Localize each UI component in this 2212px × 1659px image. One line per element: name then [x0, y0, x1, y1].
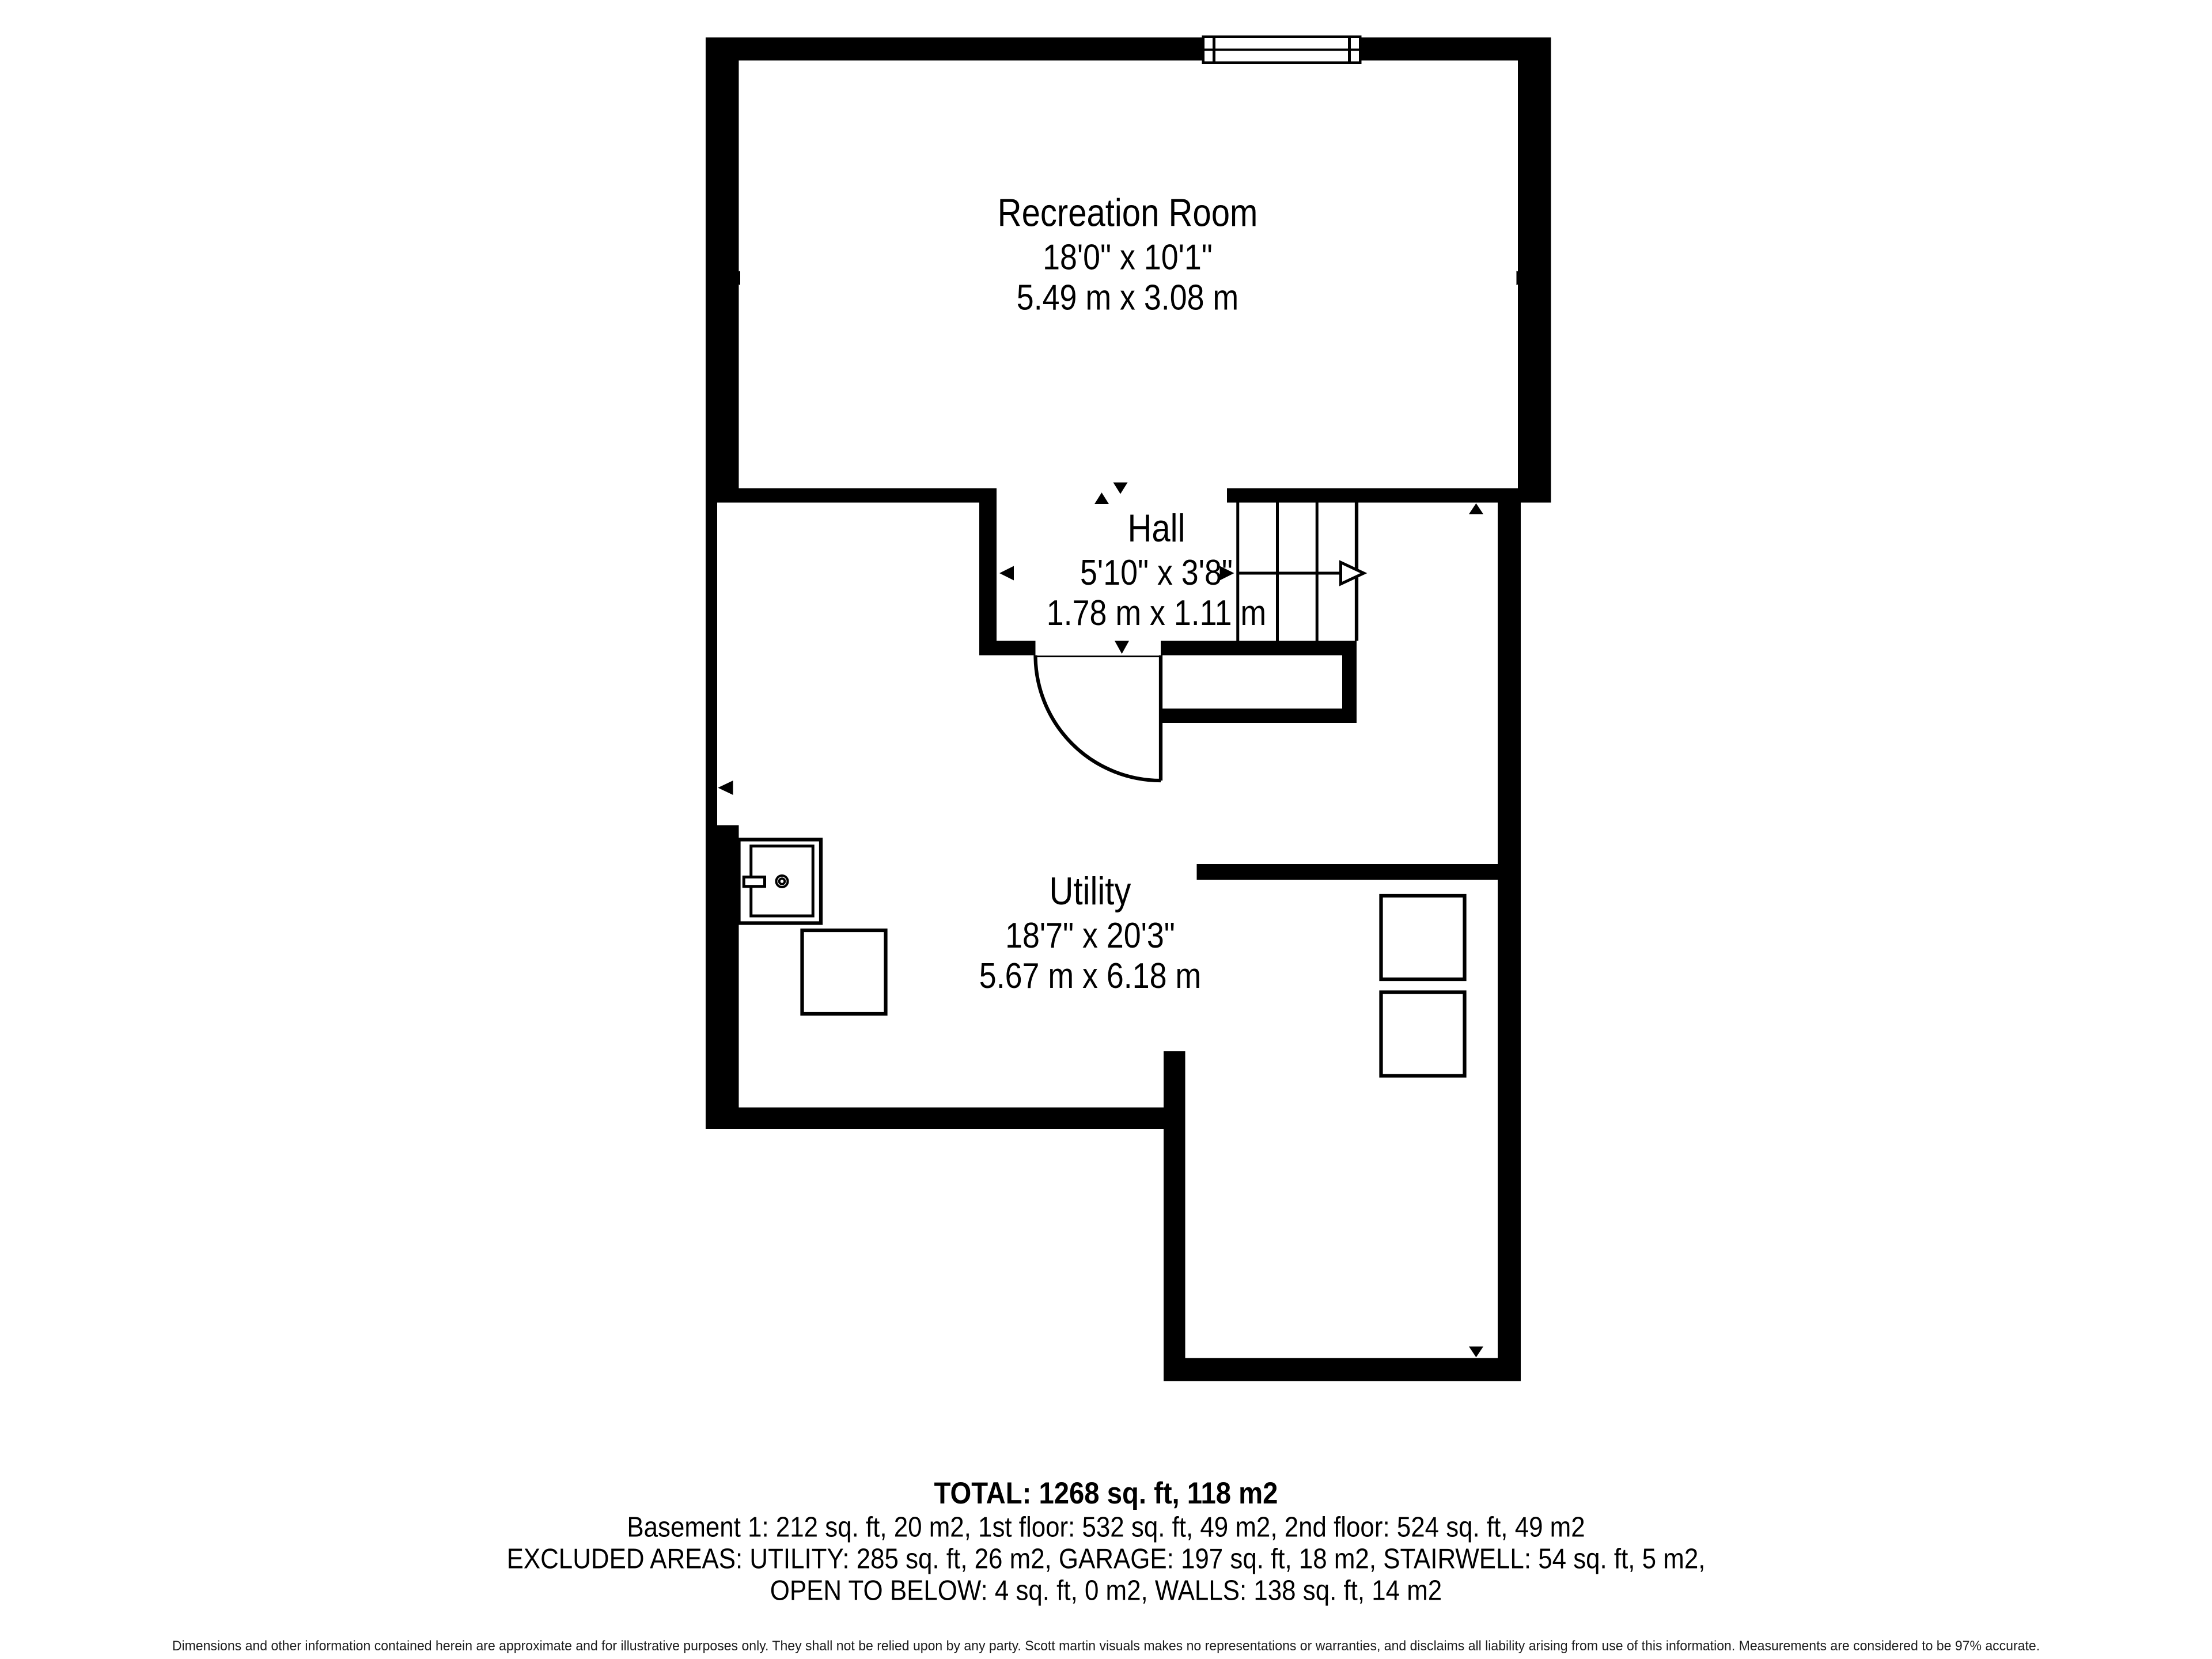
marker-right-section-top-icon — [1469, 503, 1483, 514]
summary-floors: Basement 1: 212 sq. ft, 20 m2, 1st floor… — [111, 1512, 2101, 1544]
room-dimensions-imperial: 18'0" x 10'1" — [880, 238, 1376, 278]
wall-above-stairs — [1227, 488, 1551, 503]
wall-understairs-bottom — [1161, 709, 1357, 723]
area-summary: TOTAL: 1268 sq. ft, 118 m2 Basement 1: 2… — [111, 1478, 2101, 1607]
stair-direction-arrowhead — [1341, 562, 1364, 584]
door-swing-arc — [1036, 656, 1161, 781]
marker-hall-top-up-icon — [1094, 493, 1109, 504]
wall-recreation-bottom-left — [706, 488, 997, 503]
page: Recreation Room 18'0" x 10'1" 5.49 m x 3… — [0, 0, 2212, 1659]
room-dimensions-metric: 1.78 m x 1.11 m — [971, 593, 1342, 634]
floor-plan: Recreation Room 18'0" x 10'1" 5.49 m x 3… — [0, 0, 2212, 1659]
wall-left-upper — [706, 37, 739, 503]
appliance-box-right-2 — [1381, 993, 1465, 1076]
room-name: Hall — [971, 506, 1342, 554]
room-name: Utility — [904, 869, 1276, 916]
marker-utility-left-icon — [718, 781, 733, 795]
appliance-box-utility — [802, 930, 886, 1014]
marker-hall-bottom-icon — [1115, 641, 1129, 654]
disclaimer-text: Dimensions and other information contain… — [33, 1639, 2179, 1655]
sink-faucet — [744, 877, 764, 887]
wall-garage-bottom — [1164, 1358, 1521, 1381]
wall-utility-bottom — [706, 1108, 1185, 1130]
marker-right-section-bottom-icon — [1469, 1347, 1483, 1358]
summary-total: TOTAL: 1268 sq. ft, 118 m2 — [111, 1478, 2101, 1512]
appliance-box-right-1 — [1381, 896, 1465, 979]
wall-stairs-bottom — [1161, 641, 1357, 656]
wall-garage-left — [1164, 1051, 1185, 1381]
wall-left-middle — [706, 503, 717, 825]
wall-left-lower — [706, 825, 739, 1130]
room-label-utility: Utility 18'7" x 20'3" 5.67 m x 6.18 m — [904, 869, 1276, 997]
wall-hall-bottom-left — [979, 641, 1036, 656]
room-label-hall: Hall 5'10" x 3'8" 1.78 m x 1.11 m — [971, 506, 1342, 634]
room-dimensions-metric: 5.67 m x 6.18 m — [904, 956, 1276, 997]
dimension-markers — [718, 271, 1532, 1357]
wall-right-lower — [1498, 503, 1521, 1381]
window — [1203, 37, 1361, 63]
wall-top — [706, 37, 1551, 60]
room-dimensions-metric: 5.49 m x 3.08 m — [880, 278, 1376, 319]
room-dimensions-imperial: 18'7" x 20'3" — [904, 916, 1276, 956]
room-dimensions-imperial: 5'10" x 3'8" — [971, 553, 1342, 593]
marker-hall-top-down-icon — [1113, 483, 1128, 494]
room-name: Recreation Room — [880, 190, 1376, 238]
door — [1036, 656, 1161, 781]
summary-excluded-areas-2: OPEN TO BELOW: 4 sq. ft, 0 m2, WALLS: 13… — [111, 1575, 2101, 1607]
summary-excluded-areas-1: EXCLUDED AREAS: UTILITY: 285 sq. ft, 26 … — [111, 1544, 2101, 1575]
wall-right-recreation — [1518, 37, 1551, 503]
room-label-recreation-room: Recreation Room 18'0" x 10'1" 5.49 m x 3… — [880, 190, 1376, 319]
